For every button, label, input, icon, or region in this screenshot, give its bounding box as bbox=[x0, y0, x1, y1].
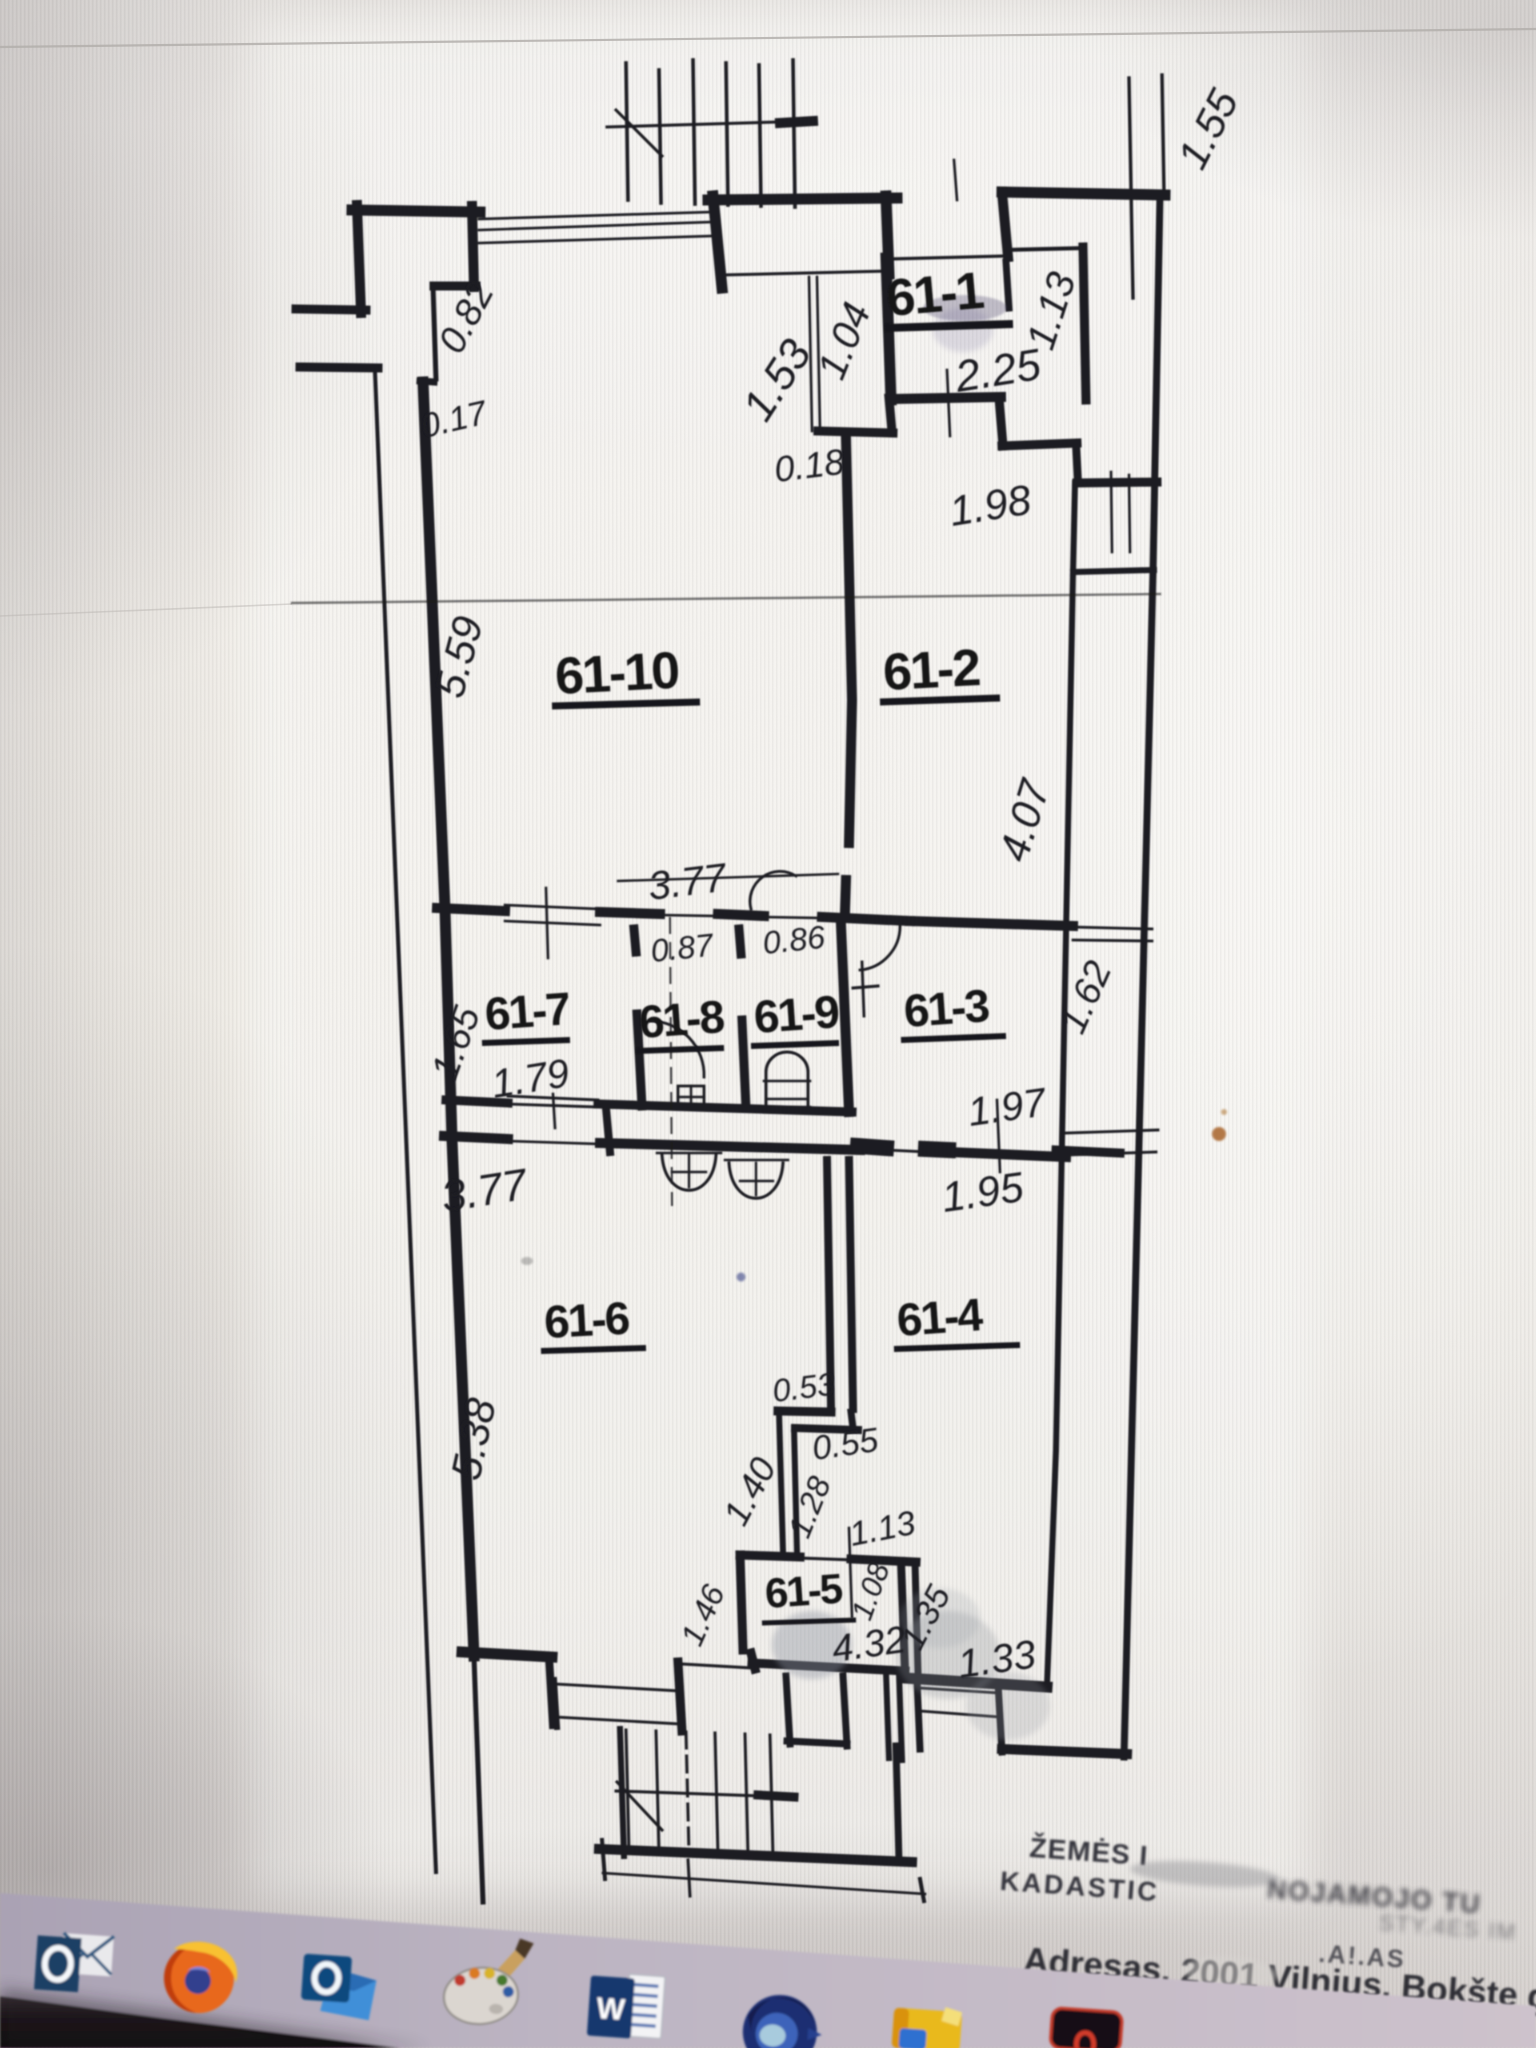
svg-text:61-6: 61-6 bbox=[543, 1292, 630, 1348]
svg-text:0.86: 0.86 bbox=[761, 919, 827, 961]
svg-text:61-1: 61-1 bbox=[884, 262, 986, 328]
svg-text:61-10: 61-10 bbox=[554, 642, 680, 706]
svg-text:61-2: 61-2 bbox=[882, 639, 981, 702]
svg-text:61-4: 61-4 bbox=[895, 1288, 985, 1346]
svg-text:61-9: 61-9 bbox=[752, 985, 840, 1043]
svg-text:61-8: 61-8 bbox=[637, 990, 726, 1048]
svg-text:61-3: 61-3 bbox=[902, 979, 990, 1037]
svg-text:W: W bbox=[595, 1992, 626, 2027]
svg-text:0.87: 0.87 bbox=[649, 927, 716, 969]
svg-text:0.18: 0.18 bbox=[772, 441, 847, 490]
svg-text:61-5: 61-5 bbox=[763, 1565, 844, 1617]
svg-text:0.53: 0.53 bbox=[770, 1366, 836, 1409]
svg-text:61-7: 61-7 bbox=[483, 982, 571, 1040]
